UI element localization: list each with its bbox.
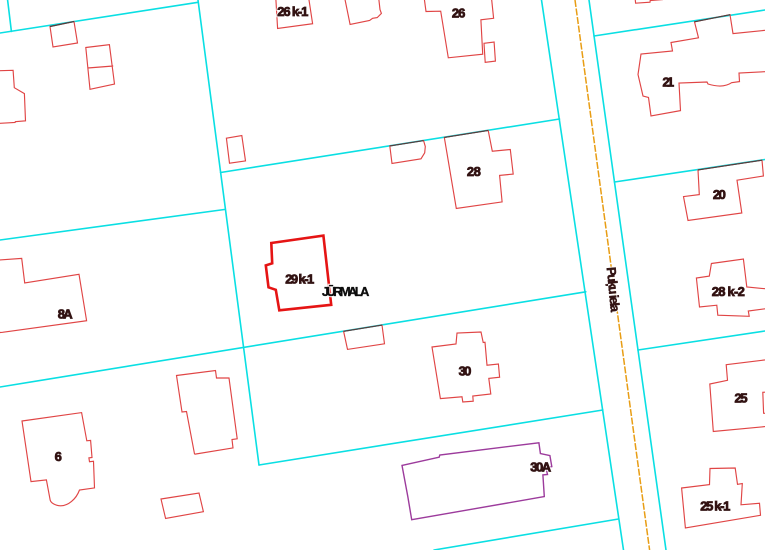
svg-text:8A: 8A [58,306,74,321]
svg-text:30: 30 [459,363,472,378]
svg-text:28 k-2: 28 k-2 [712,284,745,299]
svg-text:26 k-1: 26 k-1 [277,4,308,19]
svg-text:6: 6 [55,449,62,464]
svg-text:25: 25 [734,391,747,406]
svg-text:25 k-1: 25 k-1 [700,498,730,513]
svg-text:28: 28 [467,164,481,179]
svg-text:26: 26 [452,6,466,21]
svg-text:29 k-1: 29 k-1 [285,272,314,287]
svg-text:30A: 30A [530,459,552,474]
svg-text:20: 20 [713,187,726,202]
svg-text:JŪRMALA: JŪRMALA [322,284,370,299]
svg-text:21: 21 [663,74,675,89]
